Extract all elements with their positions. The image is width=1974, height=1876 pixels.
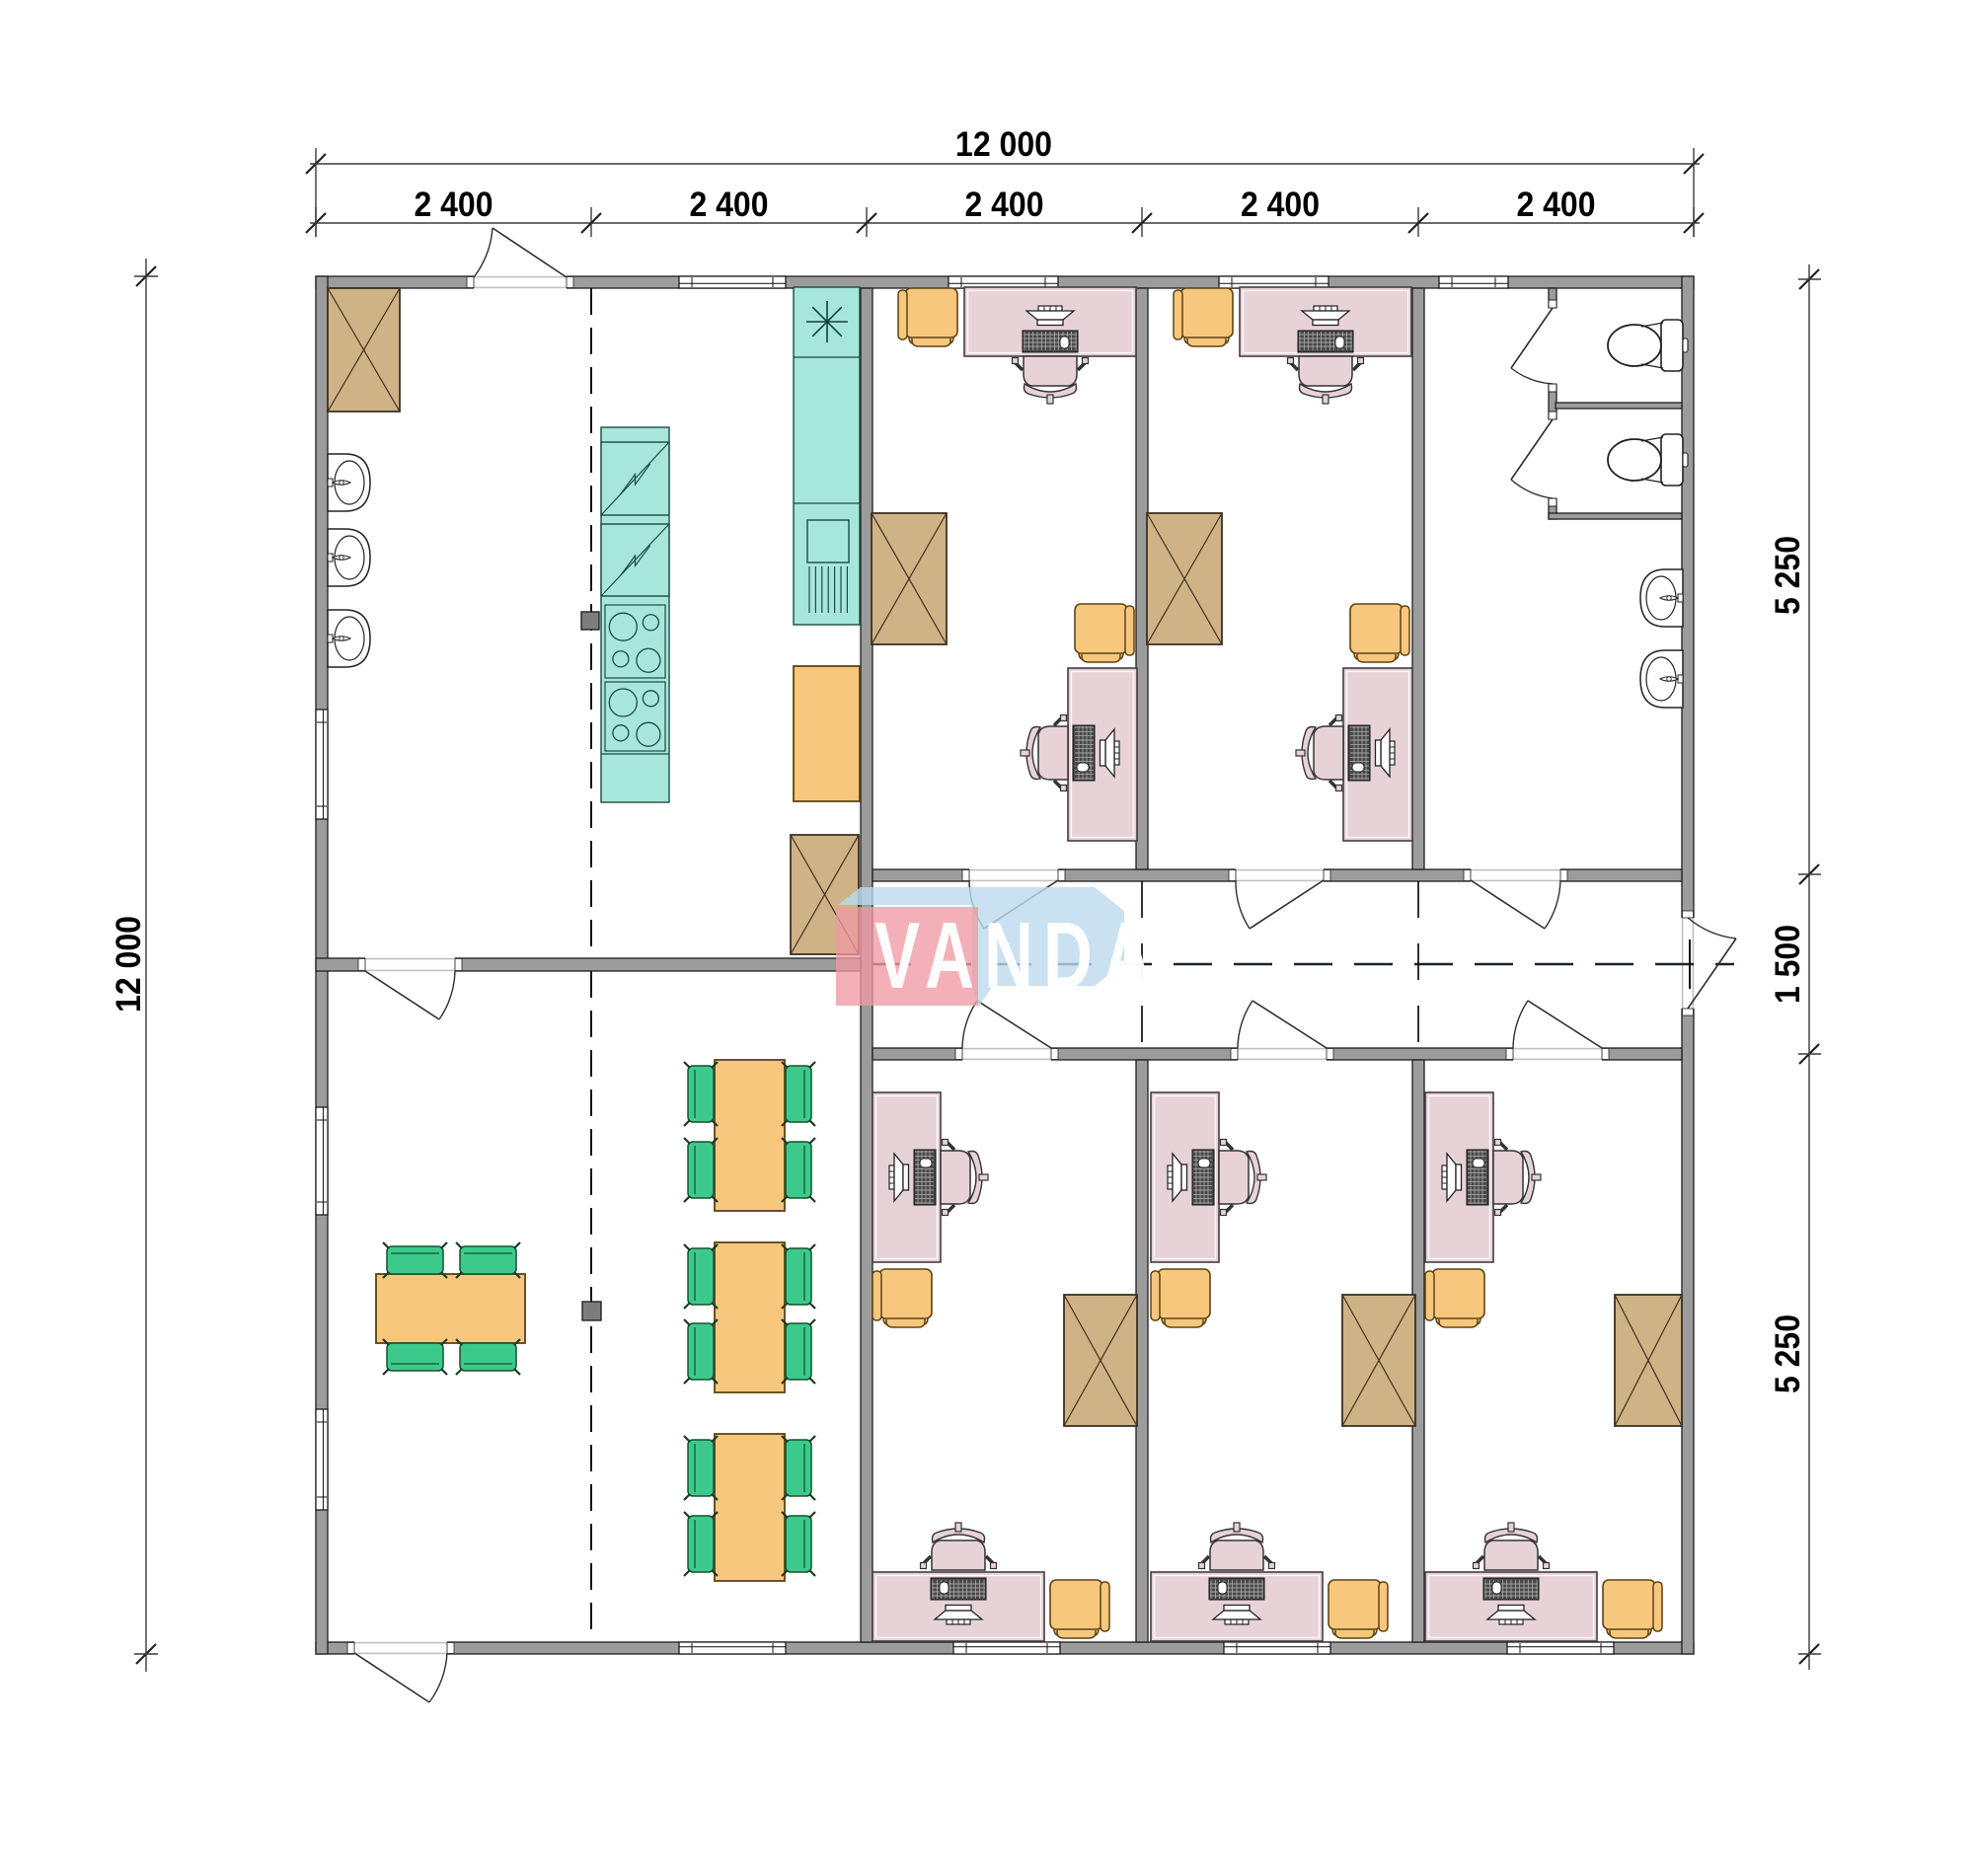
svg-text:2 400: 2 400 xyxy=(1517,186,1596,224)
svg-text:2 400: 2 400 xyxy=(965,186,1044,224)
svg-text:2 400: 2 400 xyxy=(690,186,769,224)
svg-text:1 500: 1 500 xyxy=(1769,925,1807,1004)
svg-text:2 400: 2 400 xyxy=(415,186,493,224)
svg-text:12 000: 12 000 xyxy=(110,916,148,1013)
svg-text:5 250: 5 250 xyxy=(1769,1314,1807,1393)
svg-text:12 000: 12 000 xyxy=(955,125,1052,164)
svg-text:VANDA: VANDA xyxy=(874,902,1162,1009)
svg-text:5 250: 5 250 xyxy=(1769,536,1807,615)
svg-text:2 400: 2 400 xyxy=(1241,186,1320,224)
